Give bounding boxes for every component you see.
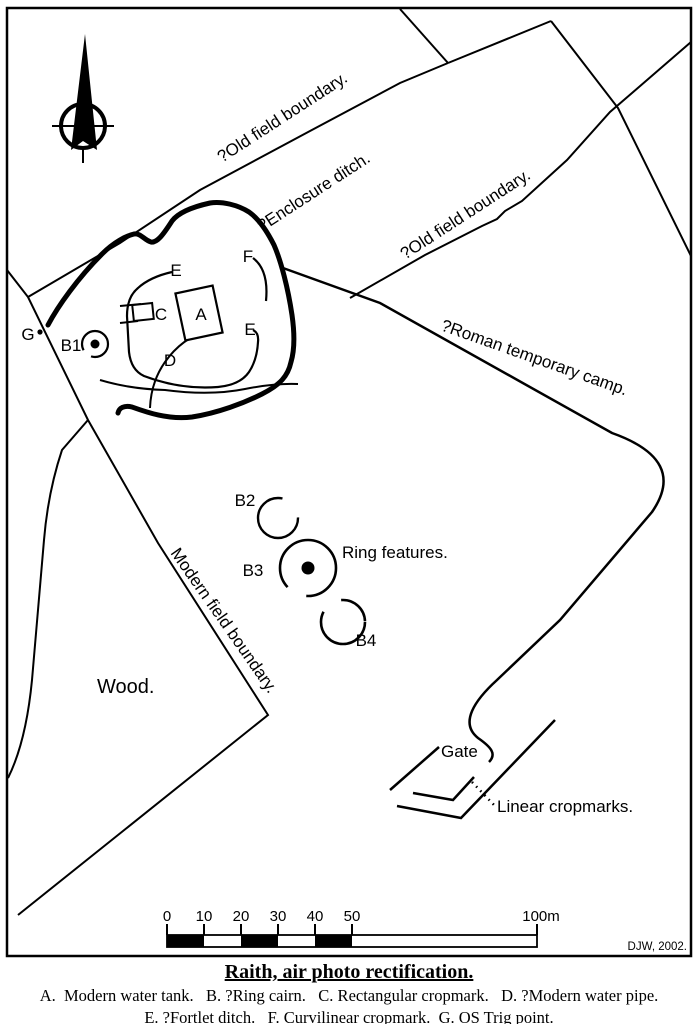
marker-c: C [155,305,167,324]
north-arrow: N [52,34,114,163]
ring-features-label: Ring features. [342,543,448,562]
scale-label-50: 50 [344,908,361,925]
marker-e-lower: E [244,320,255,339]
marker-b2: B2 [235,491,256,510]
credit-text: DJW, 2002. [628,941,687,953]
scale-label-20: 20 [233,908,250,925]
camp-gate-south-line [390,747,439,790]
old-field-boundary-2-label: ?Old field boundary. [397,165,534,263]
map-title: Raith, air photo rectification. [0,961,698,984]
field-line-peak [448,21,551,63]
marker-b4: B4 [356,631,377,650]
site-plan-svg: N [0,0,698,958]
scale-seg-20-30 [241,935,278,947]
ring-feature-b2-circle [258,498,298,538]
curvilinear-cropmark-path [253,258,266,301]
marker-f: F [243,247,253,266]
rectangular-cropmark-rect [132,303,154,321]
scale-label-100m: 100m [522,908,560,925]
legend-line-1: A. Modern water tank. B. ?Ring cairn. C.… [0,986,698,1006]
legend-line-2: E. ?Fortlet ditch. F. Curvilinear cropma… [0,1008,698,1024]
field-line-top-spur [400,9,448,63]
modern-field-boundary-label: Modern field boundary. [167,544,282,696]
scale-bar: 0 10 20 30 40 50 100m [163,908,560,947]
linear-cropmarks-label: Linear cropmarks. [497,797,633,816]
scale-seg-40-50 [315,935,352,947]
marker-b3: B3 [243,561,264,580]
marker-a: A [195,305,207,324]
enclosure-ditch-label: ?Enclosure ditch. [254,148,374,235]
modern-field-boundary-line [7,270,268,915]
marker-g: G [21,325,34,344]
linear-cropmark-short [413,777,474,800]
wood-edge-line [8,420,88,778]
marker-b1: B1 [61,336,82,355]
scale-label-10: 10 [196,908,213,925]
scale-label-30: 30 [270,908,287,925]
marker-d: D [164,351,176,370]
map-page: N [0,0,698,1024]
scale-label-40: 40 [307,908,324,925]
trig-point-dot [37,329,42,334]
gate-label: Gate [441,742,478,761]
scale-seg-0-10 [167,935,204,947]
old-field-boundary-1-label: ?Old field boundary. [214,68,351,166]
ring-cairn-dot [91,340,100,349]
scale-label-0: 0 [163,908,171,925]
roman-camp-label: ?Roman temporary camp. [439,316,631,400]
compass-n-letter: N [75,114,92,141]
marker-e-upper: E [170,261,181,280]
enclosure-ditch-path [48,202,294,417]
wood-label: Wood. [97,676,154,698]
field-line-northeast [551,21,691,256]
ring-feature-b3-dot [302,562,315,575]
caption-block: Raith, air photo rectification. A. Moder… [0,957,698,1024]
water-pipe-path [150,331,207,408]
